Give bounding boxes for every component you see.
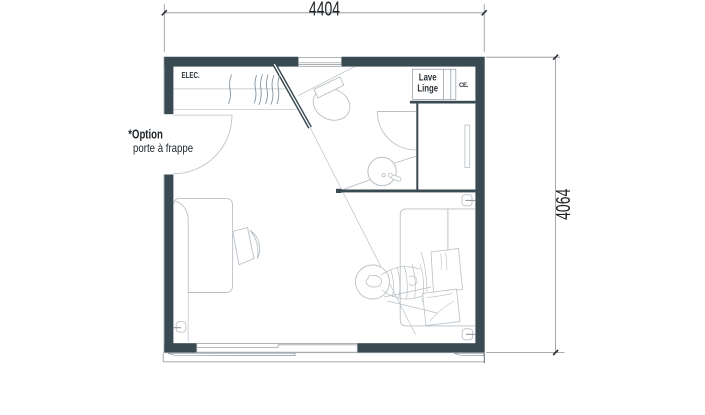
svg-text:4064: 4064 <box>551 188 574 219</box>
svg-text:porte à frappe: porte à frappe <box>133 142 193 155</box>
svg-text:ELEC.: ELEC. <box>182 70 200 80</box>
svg-text:Linge: Linge <box>417 83 438 94</box>
svg-text:*Option: *Option <box>128 128 163 142</box>
svg-text:CE.: CE. <box>459 82 469 89</box>
svg-text:Lave: Lave <box>419 72 437 83</box>
svg-text:4404: 4404 <box>309 0 340 20</box>
